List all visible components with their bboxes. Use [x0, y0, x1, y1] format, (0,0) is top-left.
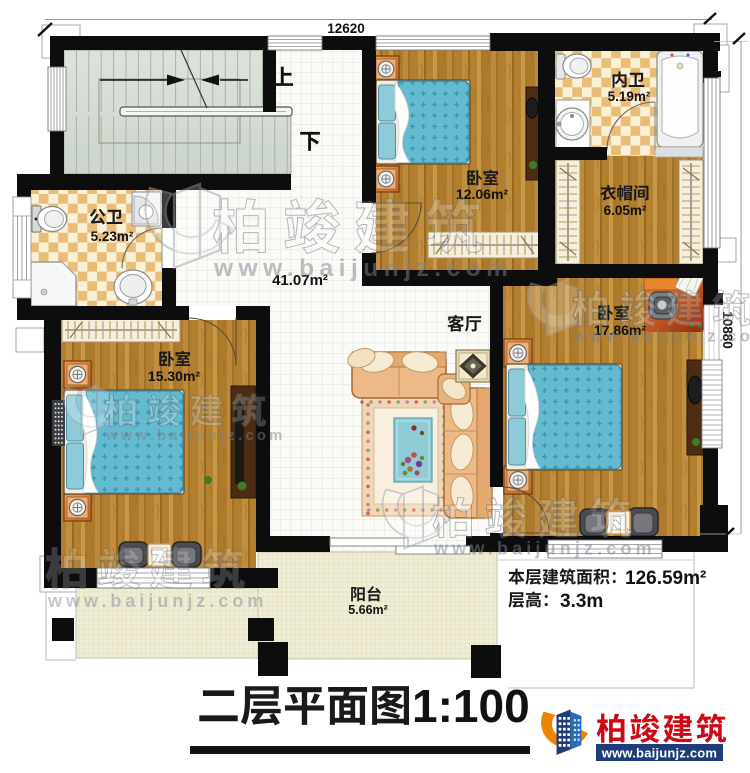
svg-text:3.3m: 3.3m: [560, 591, 603, 612]
svg-text:15.30m²: 15.30m²: [148, 368, 200, 384]
svg-text:1:100: 1:100: [412, 680, 530, 732]
svg-text:www.baijunjz.com: www.baijunjz.com: [213, 255, 513, 282]
svg-text:5.23m²: 5.23m²: [91, 229, 134, 244]
svg-text:www.baijunjz.com: www.baijunjz.com: [47, 591, 267, 611]
svg-text:5.66m²: 5.66m²: [348, 603, 388, 617]
svg-text:www.baijunjz.com: www.baijunjz.com: [433, 539, 656, 559]
svg-text:6.05m²: 6.05m²: [604, 203, 647, 218]
svg-text:126.59m²: 126.59m²: [625, 568, 706, 589]
svg-text:www.baijunjz.com: www.baijunjz.com: [105, 428, 286, 444]
svg-text:5.19m²: 5.19m²: [608, 89, 651, 104]
svg-text:12620: 12620: [327, 21, 365, 36]
svg-text:www.baijunjz.com: www.baijunjz.com: [601, 746, 717, 761]
svg-text:www.baijunjz.com: www.baijunjz.com: [573, 327, 750, 345]
